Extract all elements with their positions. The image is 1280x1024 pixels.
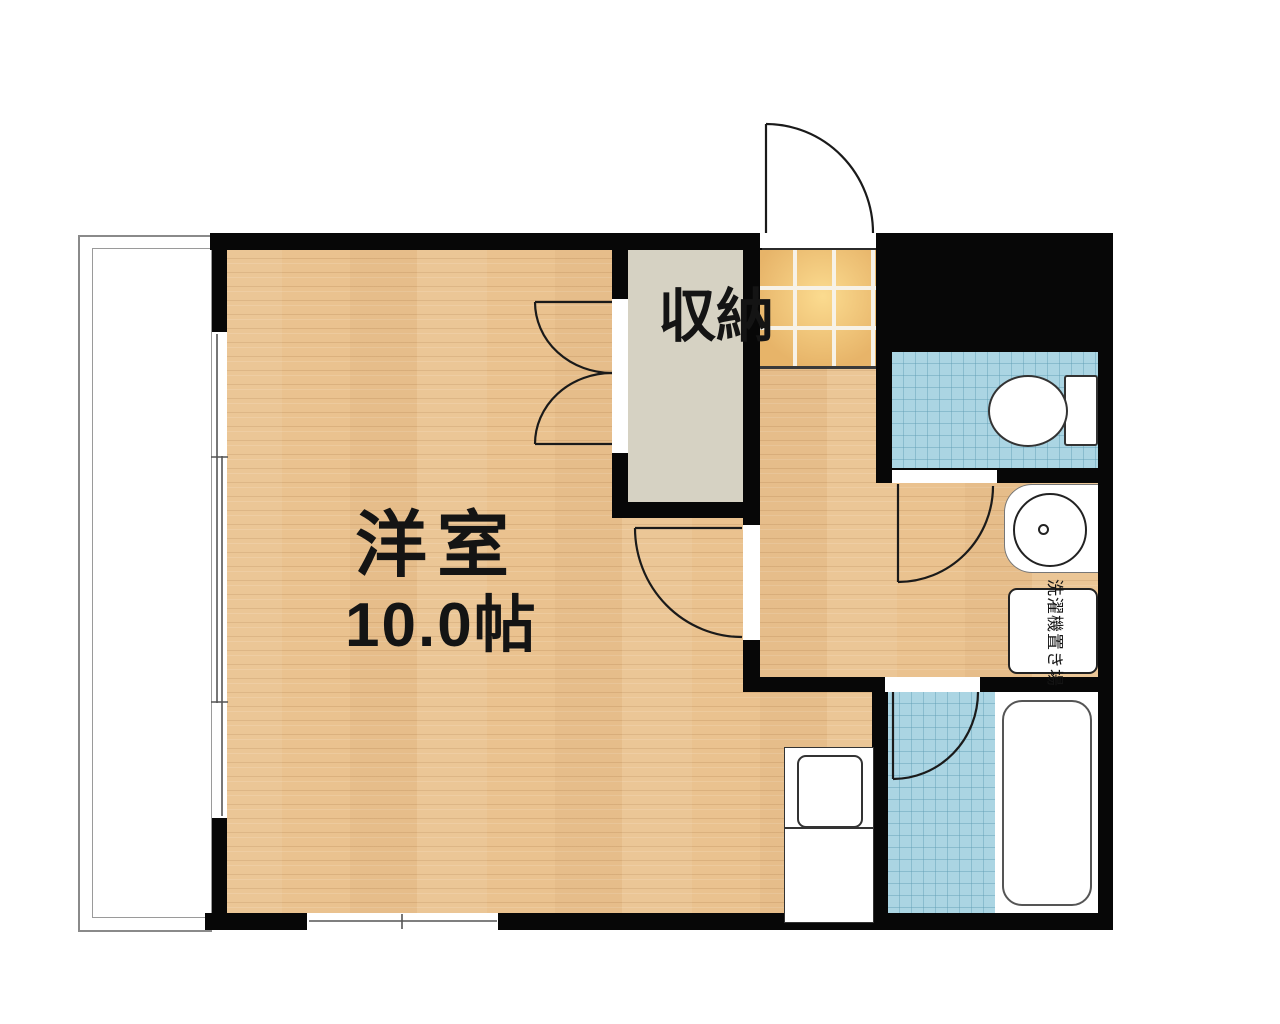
wall-left-lower	[212, 818, 227, 913]
kitchen-counter-divider	[784, 827, 874, 829]
wall-right	[1098, 233, 1113, 930]
main-room-size-label: 10.0帖	[345, 595, 538, 657]
laundry-space-label: 洗濯機置き場	[1043, 577, 1063, 689]
bathtub	[1002, 700, 1092, 906]
entrance-door-swing-arc	[766, 124, 873, 233]
wall-top-right-mass	[876, 233, 1113, 352]
wall-top	[210, 233, 762, 250]
sliding-window-left	[212, 332, 227, 818]
main-room-label: 洋室	[355, 510, 519, 582]
washbasin-bowl	[1013, 493, 1087, 567]
kitchen-sink	[797, 755, 863, 828]
room-door-opening	[743, 525, 760, 640]
toilet-tank	[1064, 375, 1098, 446]
closet-opening	[612, 299, 628, 453]
sliding-window-bottom	[307, 913, 498, 930]
wall-toilet-divider	[876, 352, 892, 483]
floor-plan: 洋室 10.0帖 収納 洗濯機置き場	[0, 0, 1280, 1024]
wall-closet-bottom	[612, 502, 760, 518]
toilet-door-opening	[892, 470, 997, 483]
toilet-bowl	[988, 375, 1068, 447]
washbasin-drain	[1038, 524, 1049, 535]
entrance-opening	[760, 233, 876, 248]
entrance-genkan-floor	[758, 248, 876, 369]
closet-label-text: 収納	[658, 272, 716, 362]
balcony-inner-rail	[92, 248, 212, 918]
wall-left-upper	[212, 235, 227, 332]
bathroom-door-opening	[885, 677, 980, 692]
wall-bath-left	[872, 692, 888, 913]
wall-room-right-upper	[743, 233, 760, 525]
closet-label: 収納	[655, 272, 719, 362]
